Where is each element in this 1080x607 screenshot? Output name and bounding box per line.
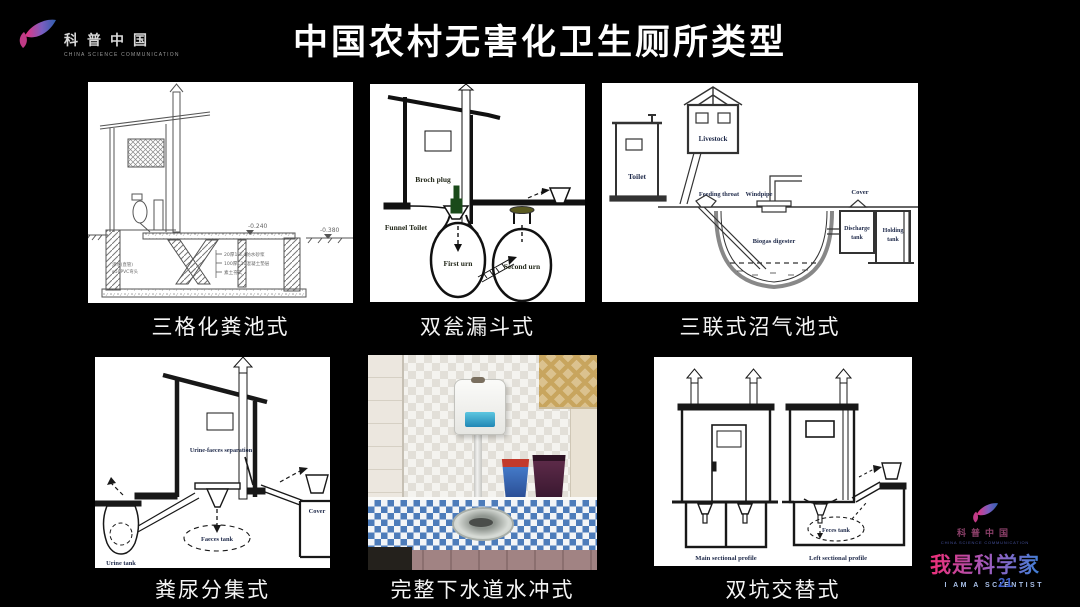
caption-separation: 粪尿分集式 xyxy=(95,574,330,604)
urn-label-second: Second urn xyxy=(504,262,541,271)
biogas-label-feeding-throat: Feeding throat xyxy=(699,191,740,198)
doublepit-label-main-profile: Main sectional profile xyxy=(695,555,756,562)
brand-slogan-en: I AM A SCIENTIST xyxy=(926,582,1044,589)
cistern xyxy=(454,379,506,435)
separation-label-main: Urine-faeces separation xyxy=(190,447,253,454)
septic-elevation-right: -0.380 xyxy=(320,227,340,234)
doublepit-label-left-profile: Left sectional profile xyxy=(809,555,867,562)
separation-label-urine-tank: Urine tank xyxy=(106,560,136,567)
accent-tiles xyxy=(539,355,597,409)
page-number: 21 xyxy=(998,575,1012,590)
urn-label-toilet: Funnel Toilet xyxy=(385,223,428,232)
slide-title: 中国农村无害化卫生厕所类型 xyxy=(0,14,1080,65)
caption-urn: 双瓮漏斗式 xyxy=(370,311,585,341)
separation-label-faeces-tank: Faeces tank xyxy=(201,536,234,543)
panel-urn-diagram: Broch plug Funnel Toilet First urn Secon… xyxy=(370,84,585,302)
doublepit-linework xyxy=(672,369,906,547)
septic-note-3: 素土夯实 xyxy=(224,269,243,276)
biogas-label-windpipe: Windpipe xyxy=(746,191,773,198)
biogas-label-discharge-1: Discharge xyxy=(844,226,870,232)
doublepit-label-feces-tank: Feces tank xyxy=(822,527,851,534)
flush-pipe xyxy=(474,433,482,501)
purple-bucket xyxy=(531,455,567,497)
brand-bottom-cn: 科普中国 xyxy=(926,526,1044,539)
septic-note-left-1: 渗水(直管) xyxy=(112,261,133,268)
brand-slogan-cn: 我是科学家 xyxy=(926,549,1044,579)
squat-pan xyxy=(452,507,514,541)
urn-label-plug: Broch plug xyxy=(415,175,451,184)
caption-septic: 三格化粪池式 xyxy=(88,311,353,341)
panel-flush-photo xyxy=(368,355,597,570)
butterfly-icon-small xyxy=(970,502,1000,524)
dark-floor xyxy=(368,547,412,570)
biogas-label-holding-2: tank xyxy=(887,237,899,243)
biogas-label-holding-1: Holding xyxy=(883,228,904,234)
caption-biogas: 三联式沼气池式 xyxy=(602,311,918,341)
caption-doublepit: 双坑交替式 xyxy=(654,574,912,604)
biogas-label-discharge-2: tank xyxy=(851,235,863,241)
panel-biogas-diagram: Toilet Livestock Feeding throat Windpipe… xyxy=(602,83,918,302)
cistern-sticker xyxy=(465,412,495,427)
separation-label-cover: Cover xyxy=(309,508,326,515)
biogas-label-livestock: Livestock xyxy=(699,135,728,143)
urn-linework xyxy=(384,84,585,301)
septic-elevation-mid: -0.240 xyxy=(248,223,268,230)
biogas-label-toilet: Toilet xyxy=(628,172,647,181)
biogas-label-digester: Biogas digester xyxy=(753,238,796,245)
brand-bottom-logo: 科普中国 CHINA SCIENCE COMMUNICATION 我是科学家 I… xyxy=(926,502,1044,589)
biogas-linework xyxy=(610,87,918,287)
caption-flush: 完整下水道水冲式 xyxy=(368,574,597,604)
slide: 科普中国 CHINA SCIENCE COMMUNICATION 中国农村无害化… xyxy=(0,0,1080,607)
urn-label-first: First urn xyxy=(444,259,474,268)
septic-note-left-2: φ50PVC弯头 xyxy=(112,268,139,275)
panel-doublepit-diagram: Feces tank Main sectional profile Left s… xyxy=(654,357,912,566)
septic-note-2: 100厚C10混凝土垫层 xyxy=(224,260,270,267)
panel-septic-diagram: -0.240 -0.380 20厚1:3.4防水砂浆 100厚C10混凝土垫层 … xyxy=(88,82,353,303)
biogas-label-cover: Cover xyxy=(851,189,868,196)
panel-separation-diagram: Urine-faeces separation Urine tank Faece… xyxy=(95,357,330,568)
septic-note-1: 20厚1:3.4防水砂浆 xyxy=(224,251,265,258)
brand-bottom-en: CHINA SCIENCE COMMUNICATION xyxy=(926,540,1044,545)
separation-linework xyxy=(95,357,330,557)
